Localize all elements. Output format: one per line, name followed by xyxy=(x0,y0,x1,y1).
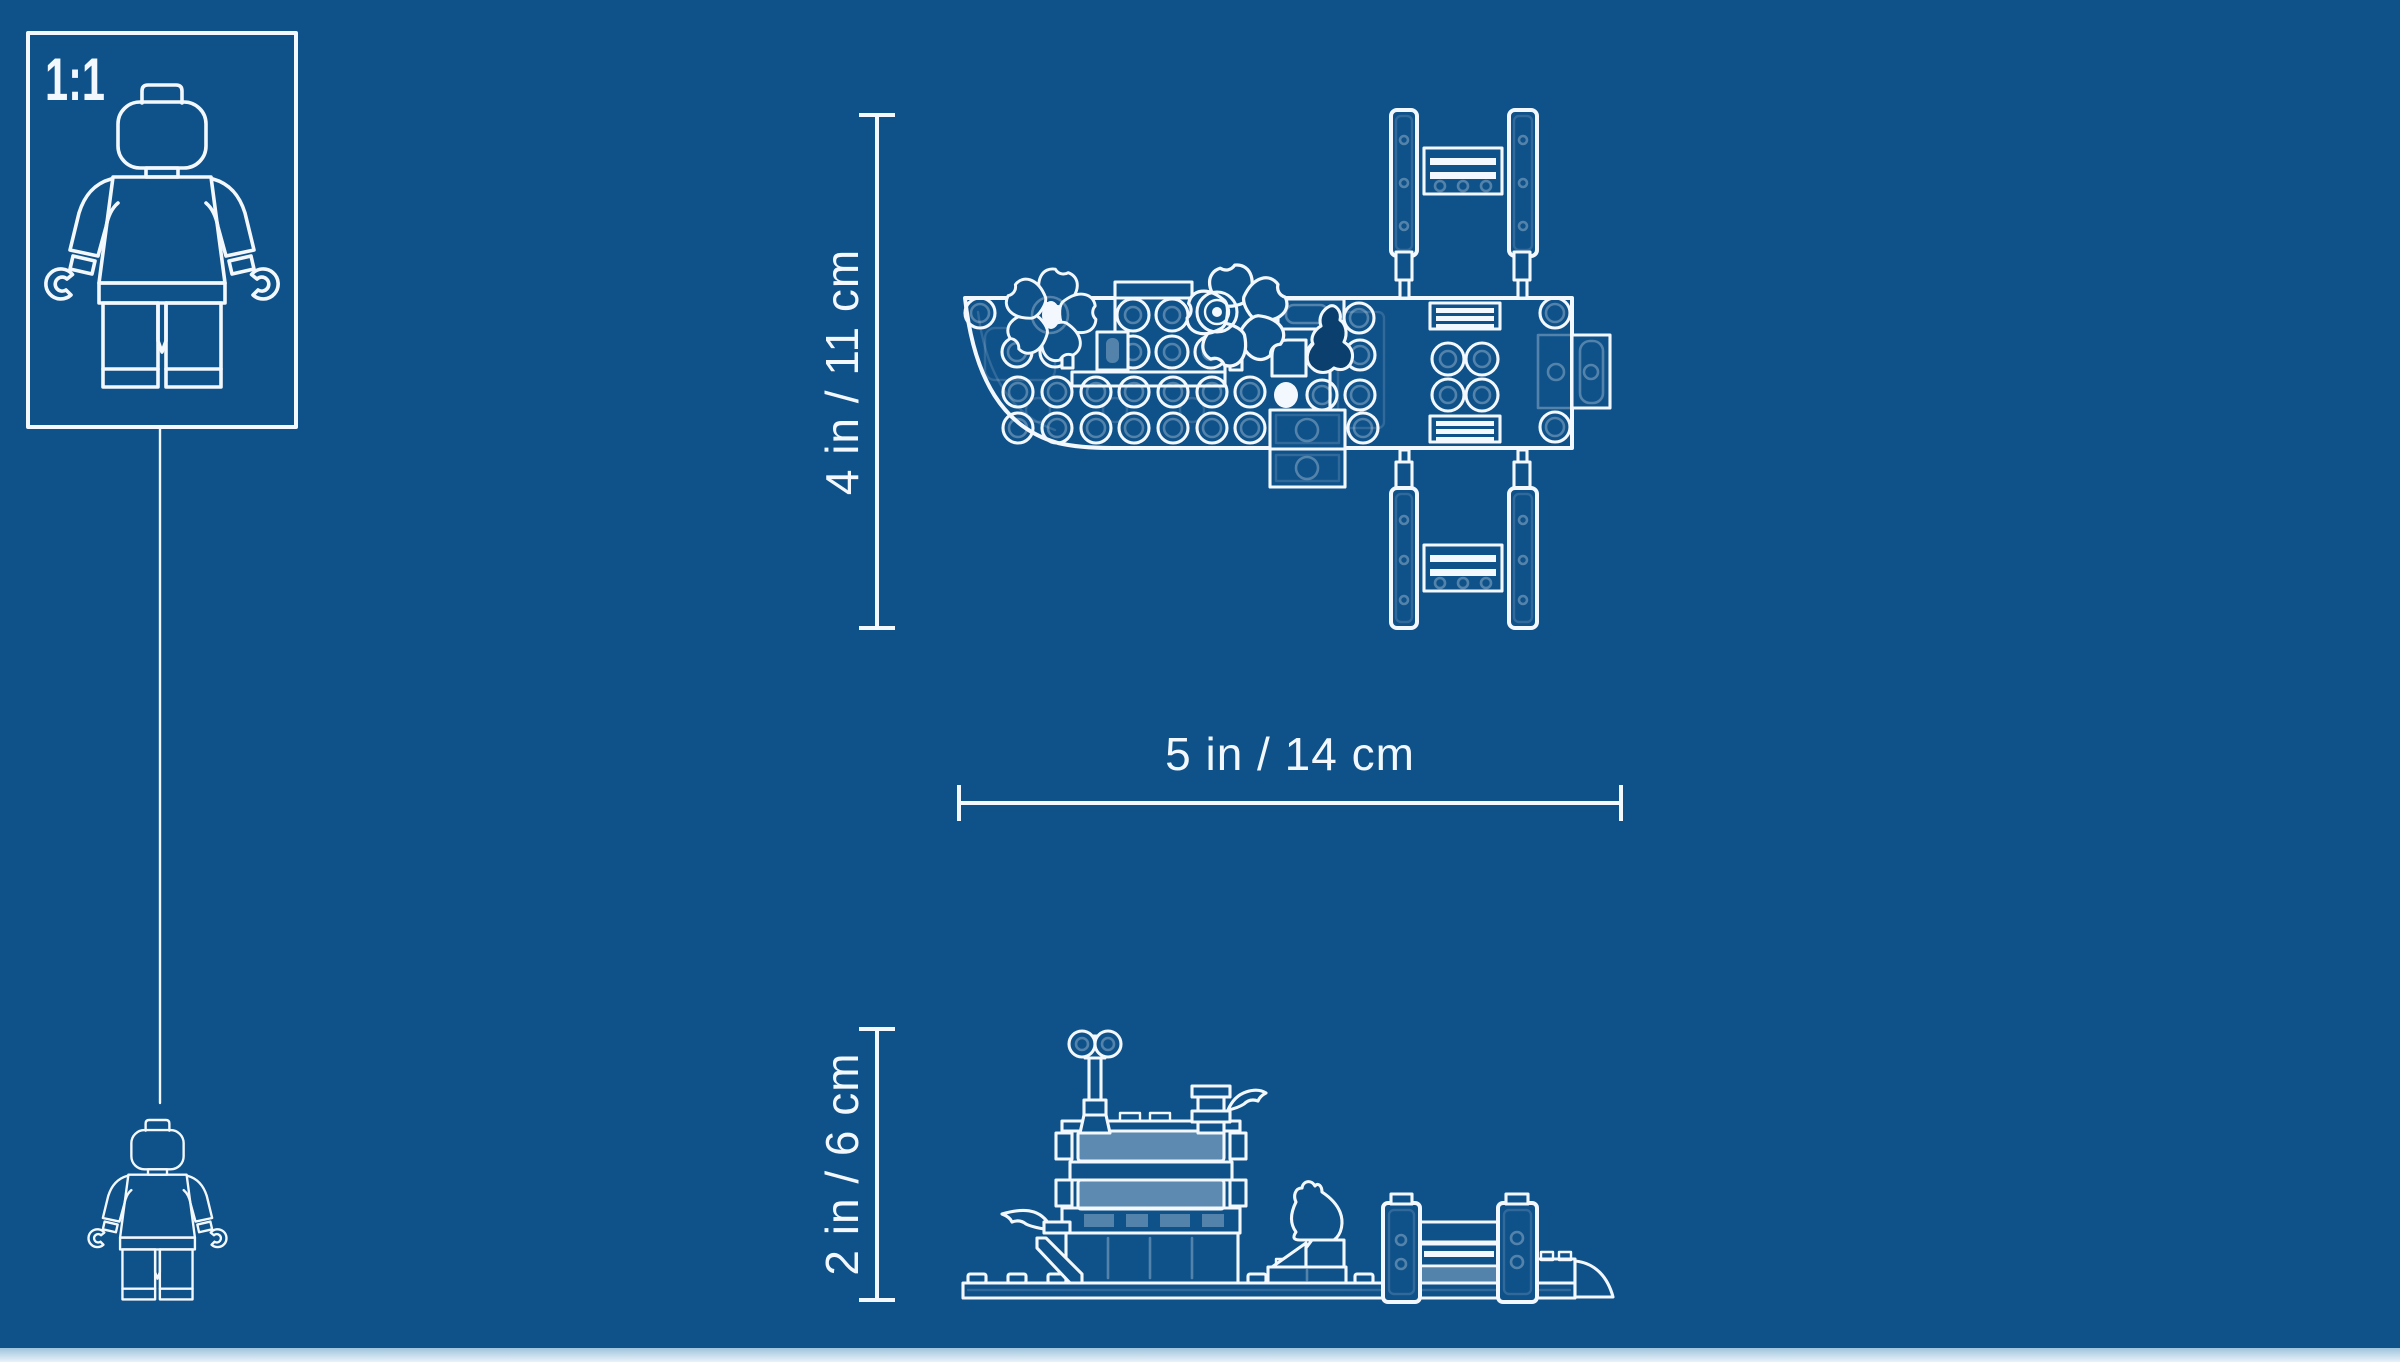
length-dimension-line xyxy=(959,785,1621,821)
seal-on-bricks xyxy=(1268,1182,1346,1283)
minifigure-outline-small xyxy=(89,1120,227,1299)
top-view-round-tile xyxy=(1274,382,1298,408)
pontoon-rail-top-right xyxy=(1509,110,1537,298)
pontoon-rail-top-left xyxy=(1391,110,1417,298)
pontoon-crossbar-bottom xyxy=(1424,545,1502,591)
top-view-length-label: 5 in / 14 cm xyxy=(1165,728,1415,780)
blueprint-canvas: 1:1 xyxy=(0,0,2400,1362)
cabin-window-lower xyxy=(1078,1180,1224,1209)
side-view-height-dimension: 2 in / 6 cm xyxy=(816,1029,895,1300)
top-view-height-dimension: 4 in / 11 cm xyxy=(816,115,895,628)
page-edge-strip xyxy=(0,1348,2400,1362)
gate-post-left xyxy=(1383,1194,1420,1302)
binoculars-icon xyxy=(1069,1031,1095,1057)
cabin-window-upper xyxy=(1078,1131,1224,1161)
top-view-lever-tile xyxy=(1097,332,1128,370)
top-view-height-label: 4 in / 11 cm xyxy=(816,249,868,495)
top-view-length-dimension: 5 in / 14 cm xyxy=(959,728,1621,821)
blueprint-page: 1:1 xyxy=(0,0,2400,1362)
pontoon-rail-bottom-right xyxy=(1509,450,1537,628)
antenna-binoculars xyxy=(1069,1031,1121,1133)
side-view-height-label: 2 in / 6 cm xyxy=(816,1052,868,1275)
pontoon-crossbar-top xyxy=(1424,148,1502,194)
top-view-under-box xyxy=(1270,410,1345,487)
side-view-cabin xyxy=(1056,1113,1246,1283)
gate-post-right xyxy=(1498,1194,1537,1302)
top-view-drawing xyxy=(965,110,1610,628)
scale-ratio-label: 1:1 xyxy=(45,46,105,113)
side-view-drawing xyxy=(963,1031,1613,1302)
pontoon-rail-bottom-left xyxy=(1391,450,1417,628)
minifigure-outline-large xyxy=(46,85,278,387)
seal-icon xyxy=(1292,1182,1343,1240)
scale-reference-box: 1:1 xyxy=(28,33,296,427)
